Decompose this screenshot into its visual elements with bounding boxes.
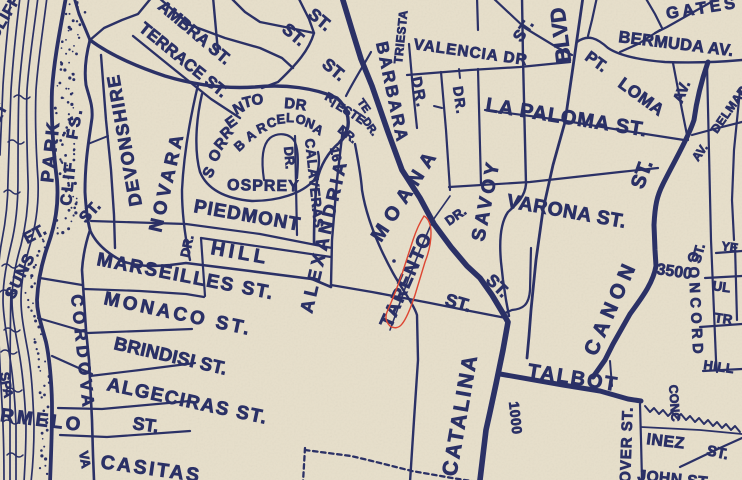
svg-text:VA: VA <box>76 450 94 470</box>
svg-text:L: L <box>286 110 295 125</box>
svg-text:YE: YE <box>721 239 739 255</box>
svg-text:OVER ST.: OVER ST. <box>617 406 637 480</box>
svg-text:O: O <box>251 91 264 109</box>
svg-text:CONC: CONC <box>666 384 683 422</box>
svg-text:ST.: ST. <box>131 413 160 436</box>
svg-text:UL: UL <box>712 278 732 295</box>
svg-text:DR.: DR. <box>281 146 298 170</box>
svg-text:OSPREY: OSPREY <box>227 177 300 195</box>
svg-text:TR: TR <box>714 310 734 327</box>
